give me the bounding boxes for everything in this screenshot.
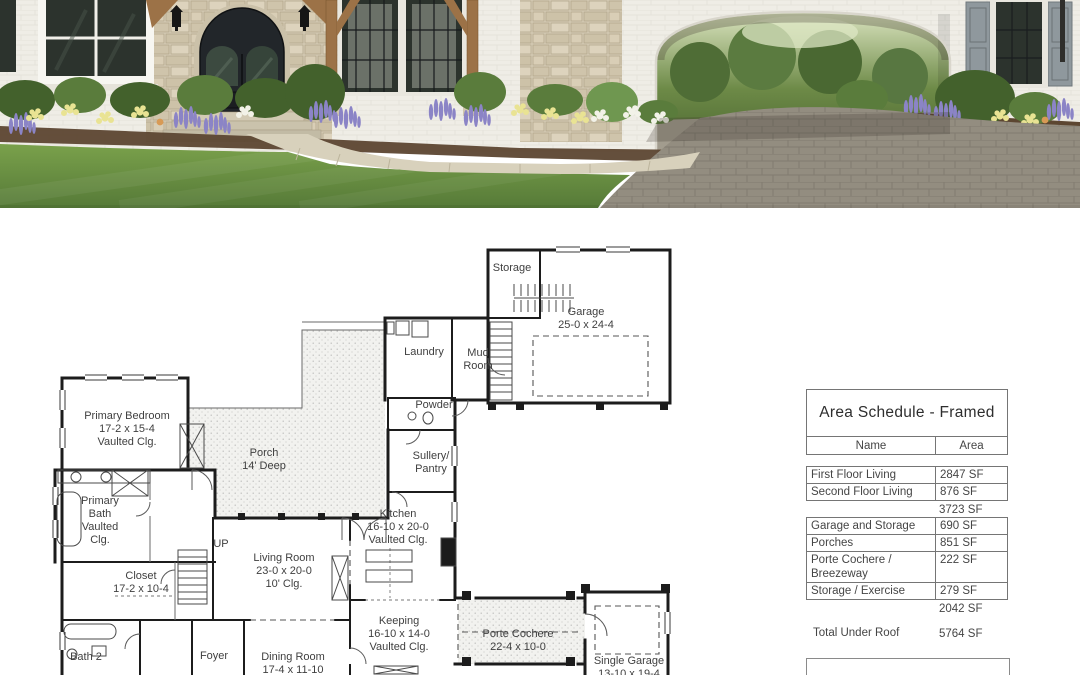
partial-schedule-box bbox=[806, 658, 1010, 675]
area-rows: First Floor Living2847 SFSecond Floor Li… bbox=[806, 466, 1008, 642]
room-label-single-garage: Single Garage13-10 x 19-4 bbox=[594, 655, 664, 675]
area-row: Second Floor Living876 SF bbox=[806, 483, 1008, 501]
area-row-name: Total Under Roof bbox=[806, 625, 934, 642]
area-schedule-header: Name Area bbox=[806, 437, 1008, 455]
room-label-mud-room: MudRoom bbox=[463, 347, 492, 372]
area-row: First Floor Living2847 SF bbox=[806, 466, 1008, 484]
room-label-primary-bath: PrimaryBathVaultedClg. bbox=[81, 495, 119, 546]
area-row-name: Second Floor Living bbox=[807, 484, 935, 500]
room-label-stairs-up: UP bbox=[213, 538, 228, 550]
area-row: Porches851 SF bbox=[806, 534, 1008, 552]
room-label-powder: Powder bbox=[415, 399, 453, 411]
area-row-value: 851 SF bbox=[935, 535, 1007, 551]
room-label-foyer: Foyer bbox=[200, 650, 228, 662]
area-schedule-table: Area Schedule - Framed Name Area First F… bbox=[806, 389, 1008, 642]
area-row-value: 690 SF bbox=[935, 518, 1007, 534]
area-row-value: 5764 SF bbox=[934, 625, 1008, 642]
room-label-closet: Closet17-2 x 10-4 bbox=[113, 570, 169, 595]
area-row-value: 222 SF bbox=[935, 552, 1007, 582]
area-row-value: 876 SF bbox=[935, 484, 1007, 500]
area-row: Garage and Storage690 SF bbox=[806, 517, 1008, 535]
garage-door-dashed bbox=[533, 336, 648, 396]
room-label-porte-cochere: Porte Cochere22-4 x 10-0 bbox=[483, 628, 554, 653]
area-row-value: 3723 SF bbox=[934, 501, 1008, 518]
area-row-name: First Floor Living bbox=[807, 467, 935, 483]
plan-sheet: StorageGarage25-0 x 24-4LaundryMudRoomPo… bbox=[0, 0, 1080, 675]
column-header-area: Area bbox=[935, 437, 1007, 454]
single-garage-door-dashed bbox=[595, 606, 659, 654]
room-label-primary-bedroom: Primary Bedroom17-2 x 15-4Vaulted Clg. bbox=[84, 410, 170, 448]
area-row: 2042 SF bbox=[806, 600, 1008, 617]
downspout bbox=[1060, 0, 1065, 62]
room-label-sullery-pantry: Sullery/Pantry bbox=[413, 450, 451, 475]
column-header-name: Name bbox=[807, 437, 935, 454]
room-label-storage: Storage bbox=[493, 262, 532, 274]
area-row-name bbox=[806, 600, 934, 617]
area-row-value: 279 SF bbox=[935, 583, 1007, 599]
room-label-bath-2: Bath 2 bbox=[70, 651, 102, 663]
house-photo bbox=[0, 0, 1080, 208]
area-row-name: Porches bbox=[807, 535, 935, 551]
area-row: 3723 SF bbox=[806, 501, 1008, 518]
area-schedule-title: Area Schedule - Framed bbox=[806, 389, 1008, 437]
room-label-keeping: Keeping16-10 x 14-0Vaulted Clg. bbox=[368, 615, 430, 653]
room-label-living-room: Living Room23-0 x 20-010' Clg. bbox=[253, 552, 314, 590]
area-row-name: Storage / Exercise bbox=[807, 583, 935, 599]
area-row-name bbox=[806, 501, 934, 518]
area-row: Storage / Exercise279 SF bbox=[806, 582, 1008, 600]
area-row: Porte Cochere / Breezeway222 SF bbox=[806, 551, 1008, 583]
room-label-garage: Garage25-0 x 24-4 bbox=[558, 306, 614, 331]
area-row: Total Under Roof5764 SF bbox=[806, 625, 1008, 642]
area-row-name: Garage and Storage bbox=[807, 518, 935, 534]
room-label-dining-room: Dining Room17-4 x 11-1010' Clg. bbox=[261, 651, 325, 675]
area-row-value: 2042 SF bbox=[934, 600, 1008, 617]
range-icon bbox=[441, 538, 456, 566]
area-row-name: Porte Cochere / Breezeway bbox=[807, 552, 935, 582]
porch-area bbox=[188, 322, 385, 518]
room-label-laundry: Laundry bbox=[404, 346, 444, 358]
area-row-value: 2847 SF bbox=[935, 467, 1007, 483]
